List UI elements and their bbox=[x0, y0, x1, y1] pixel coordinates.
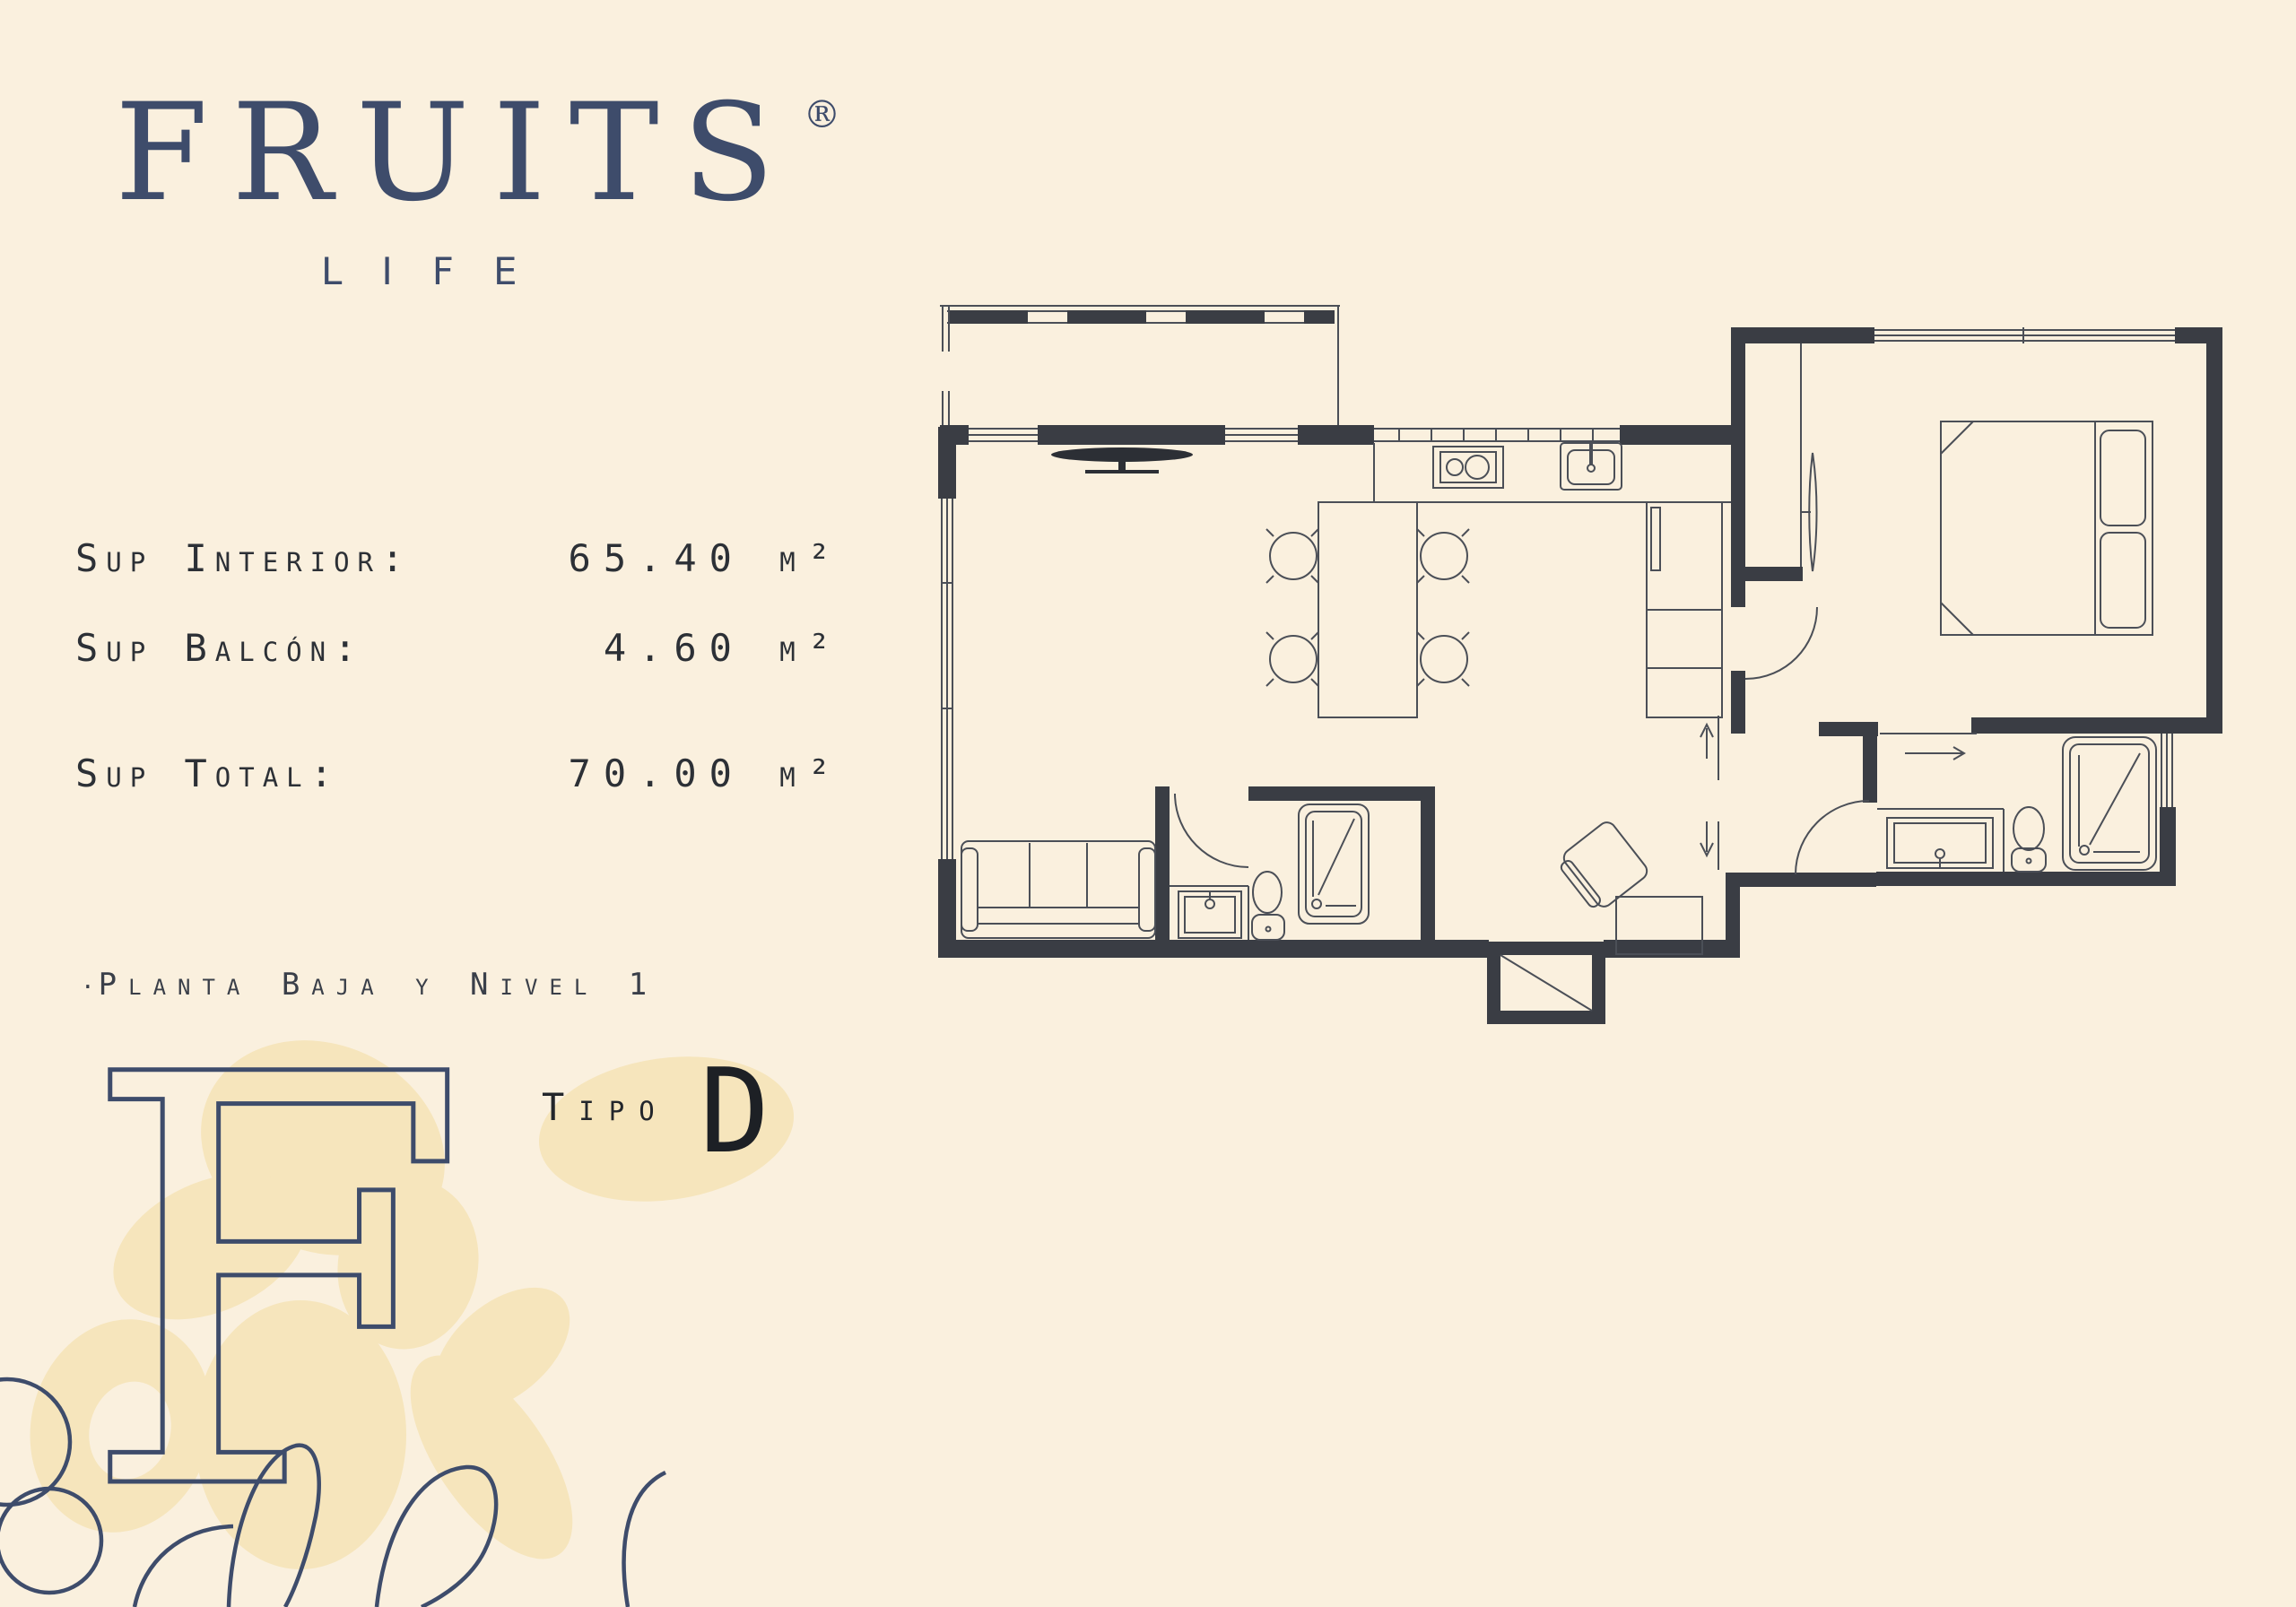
chair-icon bbox=[1417, 632, 1469, 686]
kitchen-counter bbox=[1374, 443, 1731, 502]
spec-label: Sup Interior: bbox=[75, 536, 412, 580]
chair-icon bbox=[1417, 529, 1469, 583]
brand-name-text: FRUITS bbox=[115, 75, 798, 231]
level-note: ·Planta Baja y Nivel 1 bbox=[81, 967, 658, 1003]
door-arcs bbox=[1175, 607, 1869, 874]
floorplan bbox=[933, 296, 2251, 1027]
sofa-icon bbox=[961, 841, 1155, 938]
ensuite-door-arc bbox=[1796, 801, 1869, 874]
kitchen-stove-icon bbox=[1433, 447, 1503, 488]
vanity-sink-icon bbox=[1178, 891, 1241, 938]
balcony-railing-dashes bbox=[949, 310, 1335, 324]
bathroom-door-arc bbox=[1175, 794, 1248, 867]
balcony bbox=[938, 306, 1340, 427]
registered-mark: ® bbox=[804, 92, 841, 136]
chair-icon bbox=[1266, 632, 1318, 686]
bullet-icon: · bbox=[81, 974, 99, 1001]
stairs-icon bbox=[1700, 716, 1718, 870]
spec-value: 70.00 m² bbox=[569, 751, 843, 795]
bed-icon bbox=[1941, 421, 2152, 635]
spec-label: Sup Total: bbox=[75, 751, 341, 795]
level-note-text: Planta Baja y Nivel 1 bbox=[99, 967, 659, 1003]
bedroom-door-arc bbox=[1745, 607, 1817, 679]
kitchen-cabinets bbox=[1647, 502, 1722, 717]
brand-logo: FRUITS® LIFE bbox=[115, 86, 841, 293]
kitchen-sink-icon bbox=[1561, 443, 1622, 490]
spec-label: Sup Balcón: bbox=[75, 626, 364, 670]
decorative-artwork: F bbox=[0, 1031, 682, 1607]
toilet-icon bbox=[2012, 807, 2046, 872]
spec-value: 65.40 m² bbox=[569, 536, 843, 580]
chair-icon bbox=[1266, 529, 1318, 583]
bathroom-ensuite bbox=[1877, 737, 2156, 872]
dining-table-icon bbox=[1266, 502, 1469, 717]
spec-row-total: Sup Total: 70.00 m² bbox=[75, 751, 843, 795]
shower-icon bbox=[2063, 737, 2156, 870]
bathroom-main bbox=[1170, 804, 1369, 940]
spec-row-balcon: Sup Balcón: 4.60 m² bbox=[75, 626, 843, 670]
vanity-sink-icon bbox=[1887, 818, 1993, 868]
service-shaft-icon bbox=[1487, 942, 1605, 1024]
wardrobe-mirror-icon bbox=[1801, 343, 1817, 571]
brand-name: FRUITS® bbox=[115, 86, 841, 221]
unit-type-letter: D bbox=[700, 1053, 770, 1169]
monogram-f-outline: F bbox=[79, 1031, 471, 1607]
entry-arrow-icon bbox=[1880, 734, 1977, 760]
brand-tagline: LIFE bbox=[321, 249, 841, 293]
spec-value: 4.60 m² bbox=[604, 626, 843, 670]
toilet-icon bbox=[1252, 872, 1284, 940]
page: { "background_color": "#faf0de", "brand"… bbox=[0, 0, 2296, 1607]
shower-icon bbox=[1299, 804, 1369, 924]
spec-row-interior: Sup Interior: 65.40 m² bbox=[75, 536, 843, 580]
tv-icon bbox=[1051, 447, 1193, 473]
armchair-icon bbox=[1555, 819, 1702, 954]
